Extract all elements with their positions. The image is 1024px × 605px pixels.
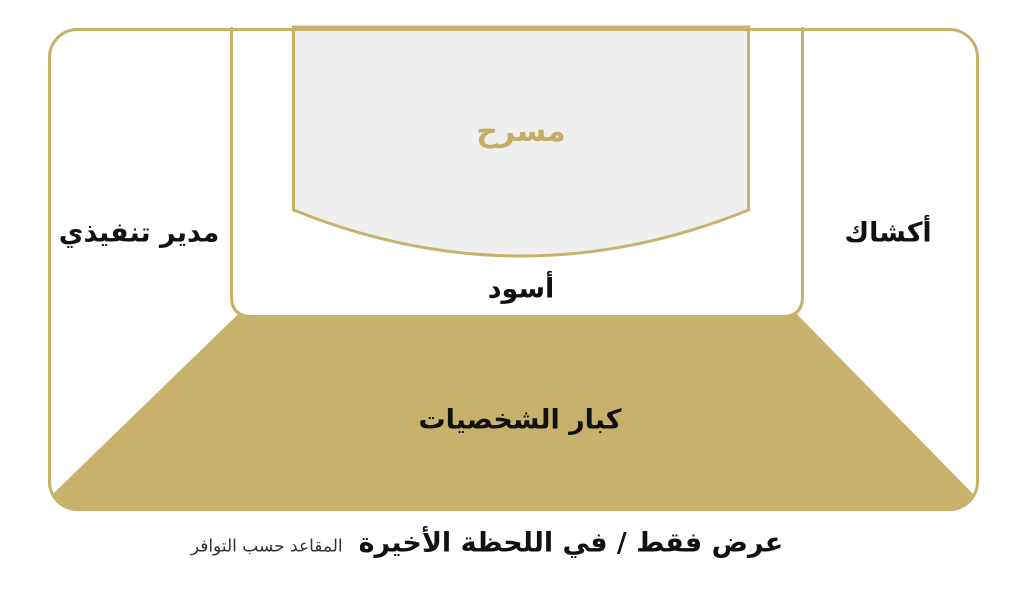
vip-label: كبار الشخصيات xyxy=(418,407,621,434)
black-zone-label: أسود xyxy=(488,276,555,303)
availability-caption-main: عرض فقط / في اللحظة الأخيرة xyxy=(359,528,784,559)
kiosks-label: أكشاك xyxy=(844,220,931,247)
availability-caption-note: المقاعد حسب التوافر xyxy=(191,537,343,557)
availability-caption: عرض فقط / في اللحظة الأخيرة المقاعد حسب … xyxy=(191,528,783,559)
venue-seating-map: مسرح أسود مدير تنفيذي أكشاك كبار الشخصيا… xyxy=(0,0,1024,605)
stage-label: مسرح xyxy=(476,117,565,147)
executive-director-label: مدير تنفيذي xyxy=(59,220,220,247)
